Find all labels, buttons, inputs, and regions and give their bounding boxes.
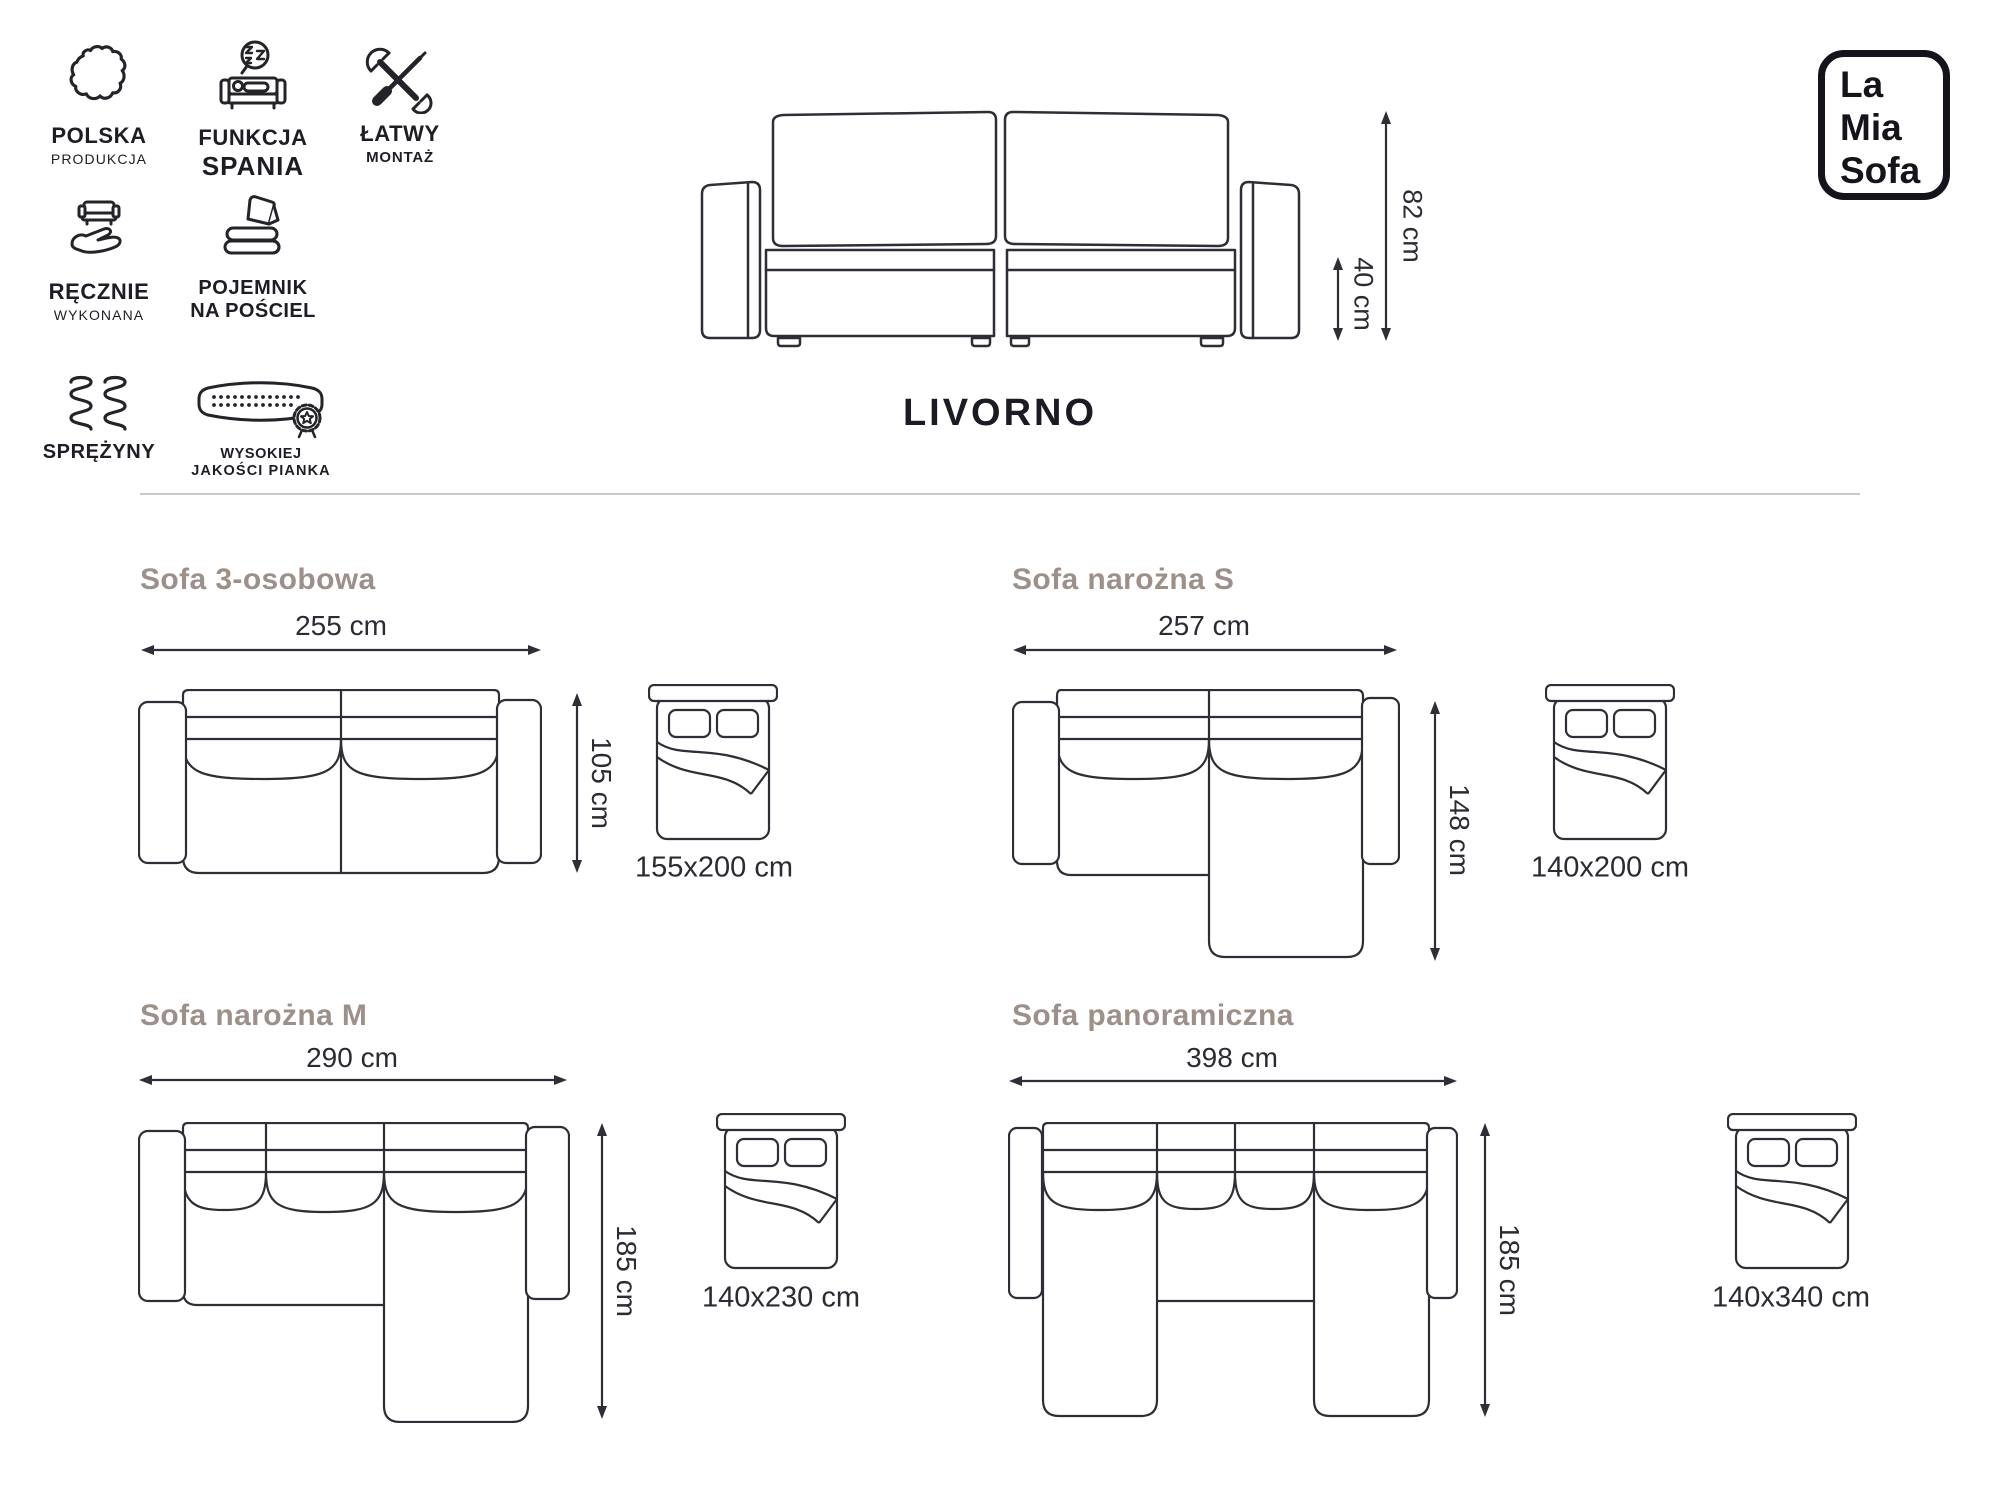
spec-sheet: POLSKA PRODUKCJA FUNKCJA <box>0 0 2000 1500</box>
bed-size-label: 155x200 cm <box>635 852 793 885</box>
section-divider <box>140 493 1860 495</box>
sofa-top-view-drawing <box>1012 689 1400 959</box>
sofa-top-view-drawing <box>138 689 542 875</box>
tools-icon <box>338 46 462 114</box>
feature-label: POLSKA <box>38 123 160 149</box>
width-dimension-label: 255 cm <box>295 610 387 642</box>
width-dimension-label: 257 cm <box>1158 610 1250 642</box>
sofa-top-view-drawing <box>1008 1122 1458 1418</box>
handmade-icon <box>38 192 160 272</box>
bed-icon <box>1727 1113 1857 1271</box>
variant-title-sofa-3-osobowa: Sofa 3-osobowa <box>140 563 376 597</box>
feature-sublabel: WYKONANA <box>38 307 160 323</box>
feature-wysokiej-jakosci-pianka: WYSOKIEJ JAKOŚCI PIANKA <box>178 376 344 479</box>
feature-polska-produkcja: POLSKA PRODUKCJA <box>38 40 160 167</box>
variant-title-sofa-panoramiczna: Sofa panoramiczna <box>1012 999 1294 1033</box>
brand-logo-line: Mia <box>1840 106 1943 149</box>
springs-icon <box>40 374 158 434</box>
feature-label: POJEMNIK <box>181 277 325 300</box>
variant-title-sofa-narozna-m: Sofa narożna M <box>140 999 367 1033</box>
foam-quality-icon <box>178 376 344 440</box>
bed-icon <box>716 1113 846 1271</box>
depth-dimension-label: 105 cm <box>585 737 617 829</box>
seat-height-dimension-label: 40 cm <box>1348 257 1379 331</box>
depth-dimension-label: 185 cm <box>610 1225 642 1317</box>
depth-dimension-arrow <box>1477 1122 1493 1418</box>
depth-dimension-arrow <box>1427 700 1443 962</box>
depth-dimension-arrow <box>594 1122 610 1420</box>
bed-icon <box>1545 684 1675 842</box>
feature-sublabel: PRODUKCJA <box>38 151 160 167</box>
product-title: LIVORNO <box>903 392 1097 435</box>
brand-logo-line: La <box>1840 63 1943 106</box>
brand-logo-line: Sofa <box>1840 149 1943 192</box>
feature-sprezyny: SPRĘŻYNY <box>40 374 158 464</box>
feature-sublabel: NA POŚCIEL <box>181 300 325 323</box>
sofa-front-view-drawing <box>688 98 1313 348</box>
feature-sublabel: JAKOŚCI PIANKA <box>178 463 344 479</box>
bed-icon <box>648 684 778 842</box>
width-dimension-arrow <box>140 642 542 658</box>
bed-size-label: 140x200 cm <box>1531 852 1689 885</box>
sleep-function-icon <box>183 38 323 118</box>
bed-size-label: 140x230 cm <box>702 1282 860 1315</box>
height-dimension-label: 82 cm <box>1397 189 1428 263</box>
width-dimension-arrow <box>1008 1073 1458 1089</box>
feature-funkcja-spania: FUNKCJA SPANIA <box>183 38 323 182</box>
bed-size-label: 140x340 cm <box>1712 1282 1870 1315</box>
width-dimension-label: 398 cm <box>1186 1042 1278 1074</box>
brand-logo: La Mia Sofa <box>1818 50 1950 200</box>
depth-dimension-label: 148 cm <box>1443 784 1475 876</box>
feature-label: FUNKCJA <box>183 125 323 151</box>
depth-dimension-label: 185 cm <box>1493 1224 1525 1316</box>
height-dimension-arrow <box>1378 110 1394 342</box>
bedding-storage-icon <box>181 190 325 270</box>
seat-height-dimension-arrow <box>1330 256 1346 342</box>
sofa-top-view-drawing <box>138 1122 570 1423</box>
feature-sublabel: SPANIA <box>183 151 323 182</box>
feature-label: ŁATWY <box>338 121 462 147</box>
feature-latwy-montaz: ŁATWY MONTAŻ <box>338 46 462 166</box>
feature-label: RĘCZNIE <box>38 279 160 305</box>
feature-sublabel: MONTAŻ <box>338 149 462 166</box>
width-dimension-arrow <box>1012 642 1398 658</box>
width-dimension-arrow <box>138 1072 568 1088</box>
feature-label: SPRĘŻYNY <box>40 441 158 464</box>
poland-map-icon <box>38 40 160 116</box>
feature-recznie-wykonana: RĘCZNIE WYKONANA <box>38 192 160 323</box>
width-dimension-label: 290 cm <box>306 1042 398 1074</box>
variant-title-sofa-narozna-s: Sofa narożna S <box>1012 563 1234 597</box>
feature-pojemnik-na-posciel: POJEMNIK NA POŚCIEL <box>181 190 325 323</box>
feature-label: WYSOKIEJ <box>178 446 344 462</box>
depth-dimension-arrow <box>569 692 585 874</box>
